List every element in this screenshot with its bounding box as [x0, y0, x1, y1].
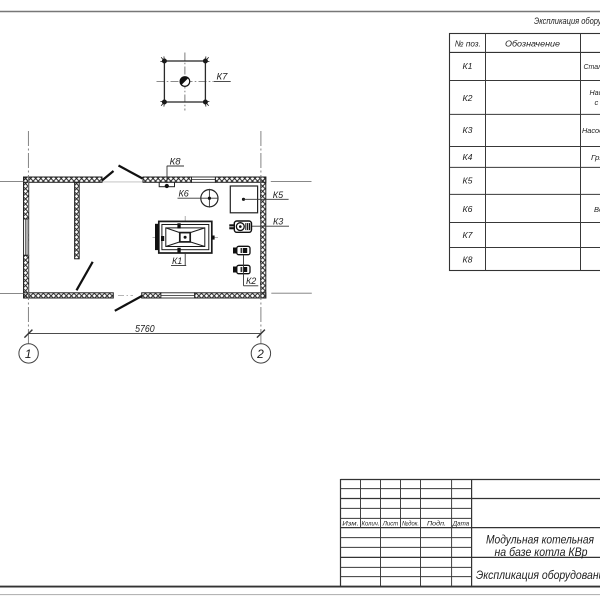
svg-text:Колич.: Колич.	[362, 521, 380, 528]
svg-text:2: 2	[256, 347, 264, 361]
svg-text:К2: К2	[246, 276, 256, 286]
svg-text:К5: К5	[463, 176, 473, 186]
svg-text:Лист: Лист	[382, 521, 399, 528]
svg-text:К3: К3	[273, 216, 283, 226]
svg-text:Дата: Дата	[452, 521, 470, 528]
svg-text:Насосы сетевые: Насосы сетевые	[590, 88, 600, 97]
svg-text:с дв.: с дв.	[595, 98, 600, 107]
svg-text:К1: К1	[172, 256, 182, 266]
svg-text:Насос подпиточный: Насос подпиточный	[582, 126, 600, 135]
svg-text:Изм.: Изм.	[342, 521, 359, 528]
svg-text:К6: К6	[179, 189, 189, 199]
svg-text:5760: 5760	[135, 323, 155, 335]
svg-text:К6: К6	[463, 204, 473, 214]
svg-text:К7: К7	[463, 230, 474, 240]
svg-text:Стальной котел: Стальной котел	[584, 62, 600, 71]
svg-text:№док.: №док.	[402, 520, 419, 528]
svg-text:К8: К8	[170, 157, 182, 168]
svg-text:Подп.: Подп.	[427, 520, 446, 528]
svg-text:на базе котла КВр: на базе котла КВр	[495, 547, 589, 559]
svg-text:Обозначение: Обозначение	[505, 38, 560, 48]
svg-text:№ поз.: № поз.	[455, 38, 481, 48]
svg-text:Вентилятор: Вентилятор	[594, 205, 600, 214]
svg-text:К5: К5	[273, 190, 284, 200]
svg-text:К1: К1	[463, 61, 473, 71]
svg-text:К3: К3	[463, 125, 473, 135]
svg-text:К8: К8	[463, 255, 473, 265]
svg-text:К4: К4	[463, 152, 473, 162]
svg-text:К2: К2	[463, 93, 473, 103]
svg-text:1: 1	[25, 347, 32, 361]
svg-text:Грязевик: Грязевик	[591, 153, 600, 162]
svg-text:К7: К7	[217, 72, 229, 83]
svg-text:Экспликация оборудования: Экспликация оборудования	[534, 16, 600, 27]
svg-text:Экспликация оборудования: Экспликация оборудования	[476, 570, 600, 582]
svg-text:Модульная котельная: Модульная котельная	[486, 535, 594, 547]
